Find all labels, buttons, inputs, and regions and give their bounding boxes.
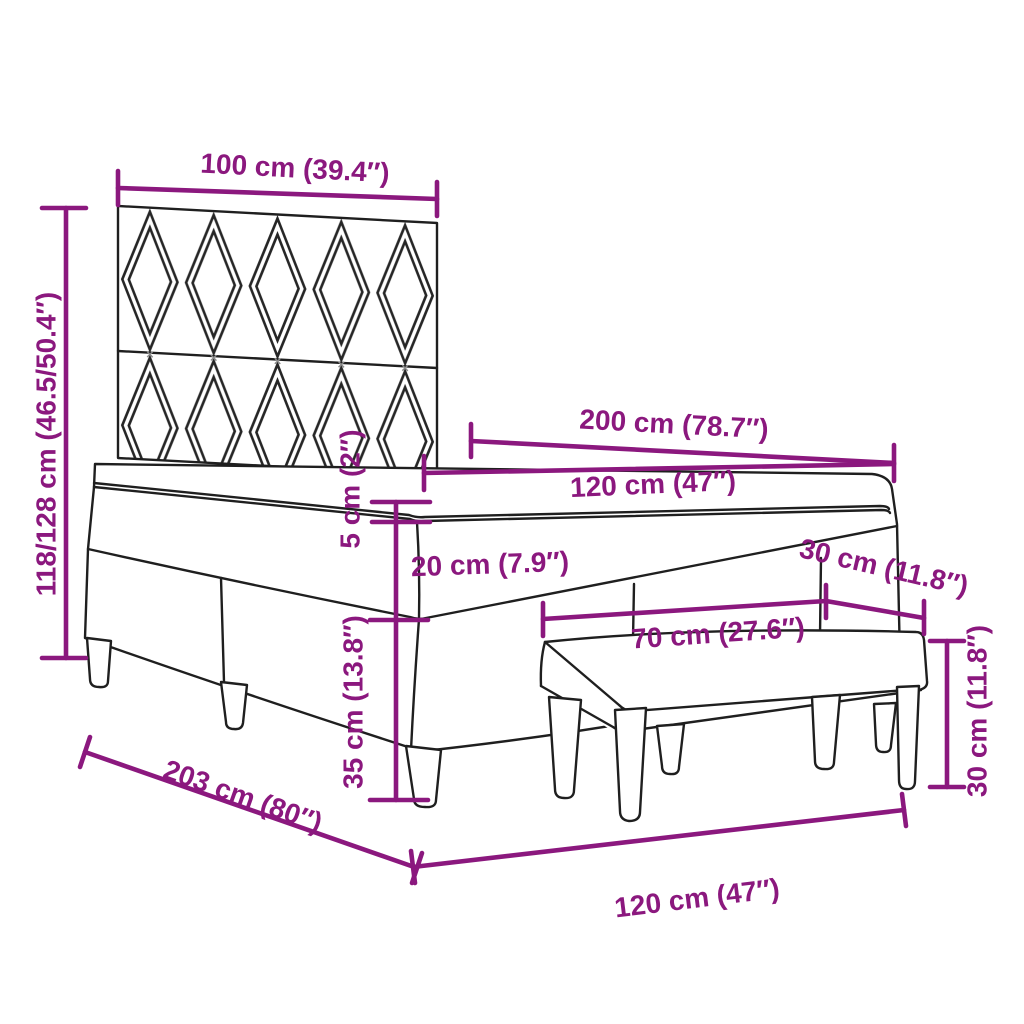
dim-label-base-height: 35 cm (13.8″)	[338, 615, 369, 789]
bench-leg	[657, 724, 684, 774]
box-foot-seam-right	[820, 558, 821, 636]
dim-label-base-length: 203 cm (80″)	[160, 754, 327, 839]
stitch-icon: ×	[338, 357, 346, 372]
dim-label-headboard-width: 100 cm (39.4″)	[200, 148, 391, 189]
dim-label-overall-height: 118/128 cm (46.5/50.4″)	[31, 292, 62, 597]
dim-label-mattress-thickness: 20 cm (7.9″)	[410, 546, 569, 583]
bed-bench-dimension-drawing: × × × × ×	[0, 0, 1024, 1024]
dim-bench-height	[930, 641, 964, 787]
dim-label-bed-length: 200 cm (78.7″)	[579, 404, 770, 445]
dim-label-base-width: 120 cm (47″)	[613, 873, 781, 924]
dim-label-bench-height: 30 cm (11.8″)	[962, 625, 993, 797]
bench-leg	[897, 686, 919, 789]
headboard: × × × × ×	[118, 206, 437, 475]
bench-leg	[874, 703, 896, 752]
stitch-icon: ×	[210, 350, 218, 365]
bed-leg	[221, 682, 247, 729]
bench-leg	[615, 708, 646, 821]
headboard-diamond-pattern	[118, 206, 437, 475]
dim-base-width	[411, 794, 906, 883]
dimension-diagram: × × × × ×	[0, 0, 1024, 1024]
stitch-icon: ×	[146, 347, 154, 362]
stitch-icon: ×	[274, 353, 282, 368]
bench-leg	[812, 695, 840, 769]
bed-leg	[87, 638, 111, 687]
stitch-icon: ×	[401, 360, 409, 375]
bench-leg	[549, 697, 581, 798]
dim-label-topper-thickness: 5 cm (2″)	[335, 429, 366, 548]
